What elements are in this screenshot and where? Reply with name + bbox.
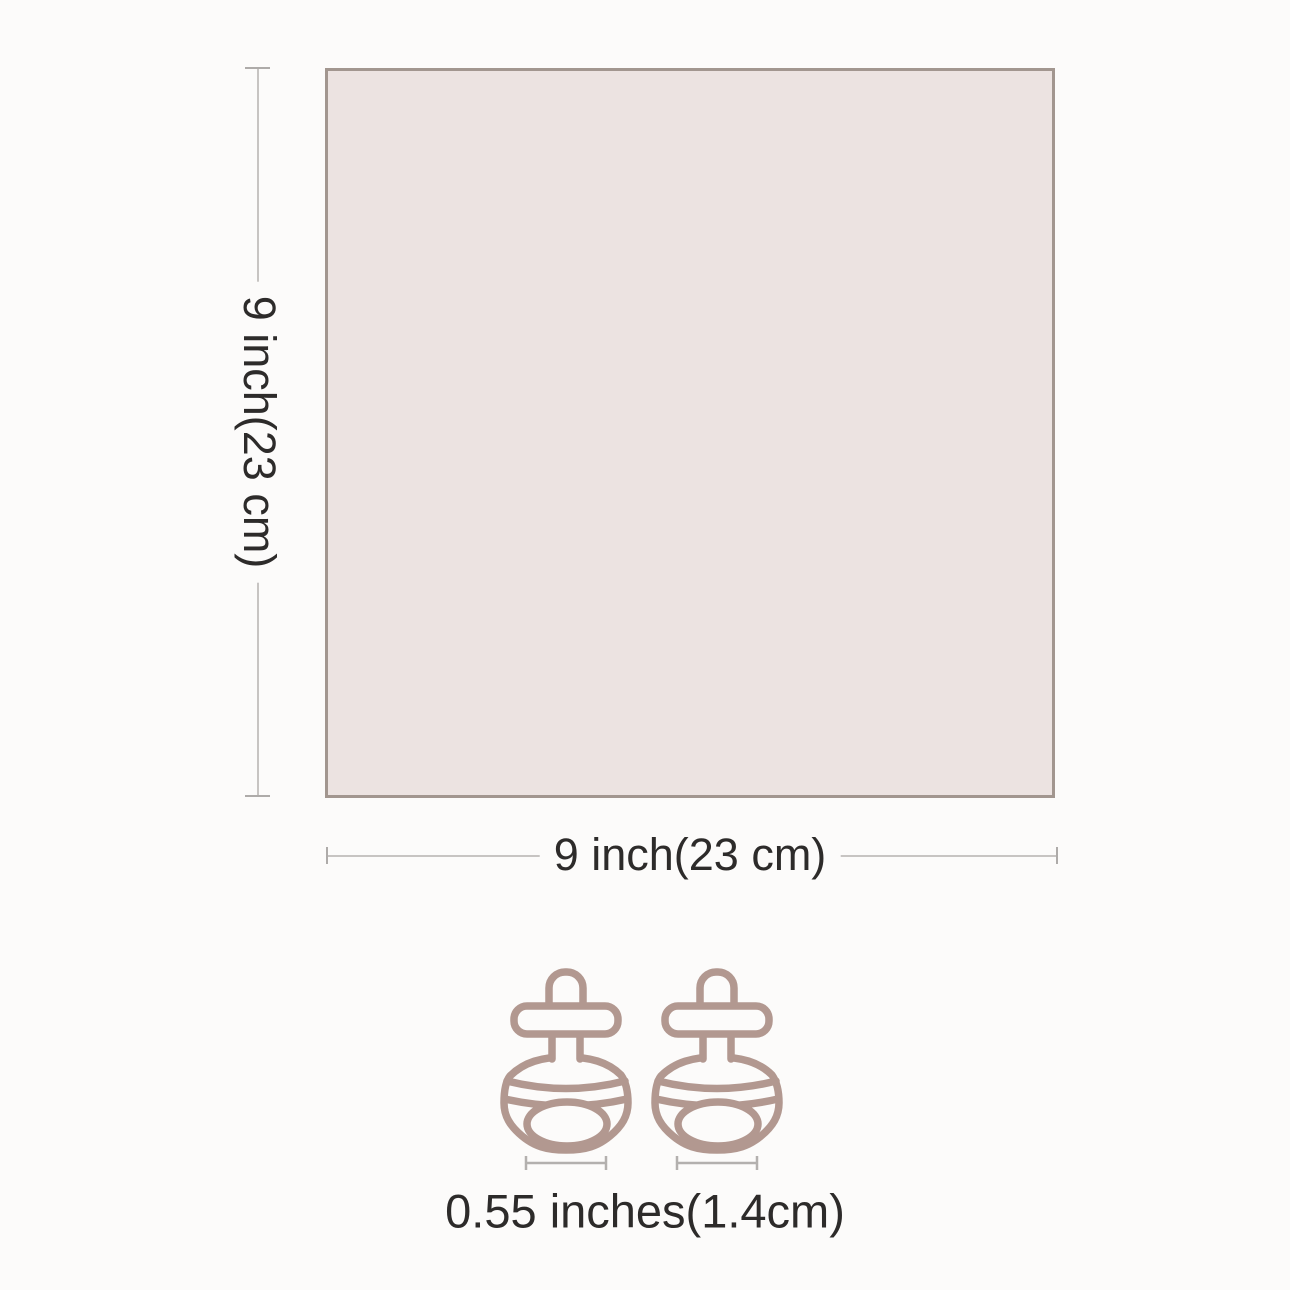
height-dimension-tick-bottom	[245, 795, 270, 797]
size-chart-canvas: 9 inch(23 cm) 9 inch(23 cm)	[0, 0, 1290, 1290]
width-dimension-tick-left	[326, 847, 328, 864]
square-panel	[325, 68, 1055, 798]
screw-rivet-icon	[647, 960, 787, 1180]
fastener-dimension-label: 0.55 inches(1.4cm)	[445, 1184, 845, 1239]
width-dimension-tick-right	[1056, 847, 1058, 864]
width-dimension-label: 9 inch(23 cm)	[540, 829, 841, 881]
screw-rivet-icon	[496, 960, 636, 1180]
height-dimension-label: 9 inch(23 cm)	[233, 282, 285, 583]
height-dimension-tick-top	[245, 67, 270, 69]
